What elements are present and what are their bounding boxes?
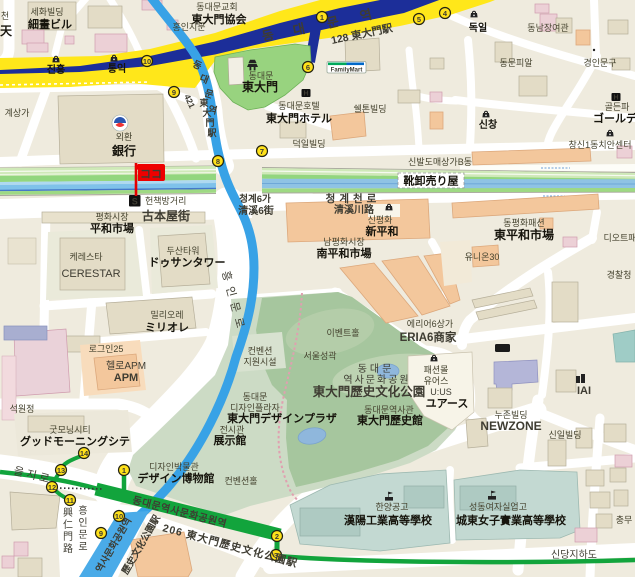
svg-text:남평화시장: 남평화시장 (323, 237, 364, 247)
svg-text:디자인플라자: 디자인플라자 (230, 403, 280, 413)
svg-text:興: 興 (63, 507, 73, 519)
svg-text:덕일빌딩: 덕일빌딩 (292, 139, 325, 149)
svg-text:경찰청: 경찰청 (607, 269, 632, 280)
svg-text:동대문: 동대문 (358, 363, 395, 375)
svg-text:9: 9 (172, 88, 176, 97)
svg-text:창신1동치안센터: 창신1동치안센터 (569, 139, 632, 150)
svg-text:석원정: 석원정 (10, 404, 35, 414)
svg-text:밀리오레: 밀리오레 (150, 309, 183, 320)
svg-text:동평화패션: 동평화패션 (503, 218, 544, 228)
svg-text:天: 天 (0, 24, 13, 38)
svg-text:東大門デザインプラザ: 東大門デザインプラザ (227, 411, 337, 425)
svg-text:신발도매상가B동: 신발도매상가B동 (408, 157, 472, 167)
svg-text:신창: 신창 (479, 118, 498, 131)
svg-text:골든파: 골든파 (605, 102, 631, 112)
svg-text:1: 1 (320, 13, 324, 22)
svg-text:細畫ビル: 細畫ビル (28, 17, 72, 31)
svg-text:6: 6 (306, 63, 310, 72)
svg-text:이벤트홀: 이벤트홀 (326, 327, 359, 338)
svg-text:흥: 흥 (78, 504, 87, 517)
svg-text:유니온30: 유니온30 (465, 252, 500, 262)
svg-text:성동여자실업고: 성동여자실업고 (469, 501, 527, 512)
svg-text:홍인지문: 홍인지문 (172, 21, 205, 32)
svg-text:城東女子實業高等學校: 城東女子實業高等學校 (456, 513, 567, 527)
svg-text:9: 9 (99, 529, 103, 538)
svg-text:7: 7 (260, 147, 264, 156)
svg-text:ココ: ココ (140, 169, 162, 181)
svg-text:1: 1 (122, 466, 126, 475)
svg-text:경인문구: 경인문구 (583, 57, 616, 68)
svg-text:진흥: 진흥 (47, 63, 65, 76)
svg-text:漢陽工業高等學校: 漢陽工業高等學校 (344, 513, 433, 527)
svg-text:서울성곽: 서울성곽 (303, 350, 336, 361)
svg-text:케레스타: 케레스타 (69, 252, 103, 262)
svg-text:평화시장: 평화시장 (95, 212, 128, 222)
svg-text:인: 인 (78, 517, 87, 529)
svg-text:11: 11 (66, 496, 74, 505)
svg-text:ドゥサンタワー: ドゥサンタワー (149, 256, 226, 269)
svg-text:古本屋街: 古本屋街 (142, 208, 190, 223)
svg-text:통익: 통익 (108, 63, 126, 75)
svg-text:デザイン博物館: デザイン博物館 (138, 471, 215, 485)
svg-text:東大門: 東大門 (242, 79, 278, 94)
svg-text:동대문역사관: 동대문역사관 (364, 405, 414, 415)
svg-text:신평화: 신평화 (368, 215, 393, 225)
svg-text:쉘톤빌딩: 쉘톤빌딩 (353, 104, 386, 114)
svg-text:문: 문 (78, 529, 87, 541)
svg-text:ゴールデ: ゴールデ (593, 111, 635, 125)
svg-text:ミリオレ: ミリオレ (145, 321, 189, 334)
svg-text:ユアース: ユアース (426, 397, 469, 410)
svg-text:유어스: 유어스 (424, 376, 449, 386)
svg-text:두산타워: 두산타워 (166, 246, 199, 256)
svg-text:2: 2 (275, 532, 279, 541)
svg-text:패션몰: 패션몰 (424, 365, 449, 375)
svg-text:新平和: 新平和 (366, 224, 399, 238)
svg-text:에리어6상가: 에리어6상가 (407, 319, 453, 329)
svg-text:IAI: IAI (577, 385, 591, 397)
svg-text:컨벤션: 컨벤션 (248, 346, 273, 356)
svg-text:駅: 駅 (207, 128, 217, 138)
svg-text:東大門歷史館: 東大門歷史館 (357, 413, 423, 427)
svg-text:清溪6街: 清溪6街 (238, 204, 274, 217)
svg-text:청계6가: 청계6가 (239, 193, 271, 205)
svg-text:천: 천 (1, 11, 9, 21)
svg-text:헬로APM: 헬로APM (106, 360, 146, 372)
svg-text:계상가: 계상가 (5, 107, 30, 118)
svg-text:충무: 충무 (616, 515, 633, 525)
svg-text:大: 大 (202, 107, 211, 118)
svg-text:독일: 독일 (469, 21, 487, 34)
svg-text:동남장여관: 동남장여관 (527, 22, 568, 33)
svg-text:平和市場: 平和市場 (90, 221, 134, 235)
svg-text:청계천로: 청계천로 (326, 192, 381, 205)
svg-text:로: 로 (78, 542, 87, 553)
svg-text:동대문호텔: 동대문호텔 (278, 100, 319, 111)
svg-text:銀行: 銀行 (111, 143, 136, 158)
svg-text:신당지하도: 신당지하도 (551, 548, 597, 561)
svg-text:신일빌딩: 신일빌딩 (548, 430, 581, 440)
svg-text:門: 門 (205, 118, 214, 128)
svg-text:NEWZONE: NEWZONE (480, 419, 541, 433)
svg-text:한양공고: 한양공고 (375, 502, 408, 512)
svg-text:APM: APM (114, 372, 138, 384)
svg-text:세화빌딩: 세화빌딩 (30, 7, 63, 17)
svg-text:컨벤션홀: 컨벤션홀 (224, 475, 257, 486)
svg-text:5: 5 (417, 15, 421, 24)
svg-text:13: 13 (57, 466, 65, 475)
svg-text:U:US: U:US (430, 387, 452, 397)
svg-text:東平和市場: 東平和市場 (494, 227, 554, 242)
svg-text:디오트패: 디오트패 (603, 233, 635, 243)
svg-text:門: 門 (63, 531, 73, 543)
svg-text:FamilyMart: FamilyMart (331, 68, 363, 74)
svg-text:南平和市場: 南平和市場 (317, 246, 372, 260)
svg-text:東大門ホテル: 東大門ホテル (266, 111, 332, 125)
svg-text:CERESTAR: CERESTAR (61, 268, 120, 280)
svg-text:굿모닝시티: 굿모닝시티 (49, 425, 90, 435)
svg-text:グッドモーニングシテ: グッドモーニングシテ (20, 434, 130, 448)
svg-text:동대문교회: 동대문교회 (196, 2, 237, 12)
svg-text:ERIA6商家: ERIA6商家 (400, 330, 457, 344)
svg-text:8: 8 (216, 157, 220, 166)
svg-text:S: S (132, 197, 138, 207)
svg-text:전시관: 전시관 (220, 425, 245, 435)
svg-text:로그인25: 로그인25 (89, 344, 124, 354)
svg-text:展示館: 展示館 (213, 433, 247, 447)
svg-text:디자인박물관: 디자인박물관 (149, 462, 199, 472)
svg-text:14: 14 (80, 449, 89, 458)
svg-text:헌책방거리: 헌책방거리 (145, 195, 186, 206)
svg-text:東大門歷史文化公園: 東大門歷史文化公園 (313, 384, 426, 399)
svg-text:路: 路 (63, 542, 73, 555)
svg-text:10: 10 (143, 57, 151, 66)
svg-text:仁: 仁 (63, 519, 73, 531)
svg-text:동대문: 동대문 (243, 392, 268, 402)
svg-text:東: 東 (199, 97, 208, 108)
svg-text:靴卸売り屋: 靴卸売り屋 (404, 174, 459, 188)
svg-text:동문피알: 동문피알 (499, 58, 532, 68)
svg-text:지원시설: 지원시설 (243, 357, 276, 367)
svg-text:외환: 외환 (116, 131, 133, 142)
